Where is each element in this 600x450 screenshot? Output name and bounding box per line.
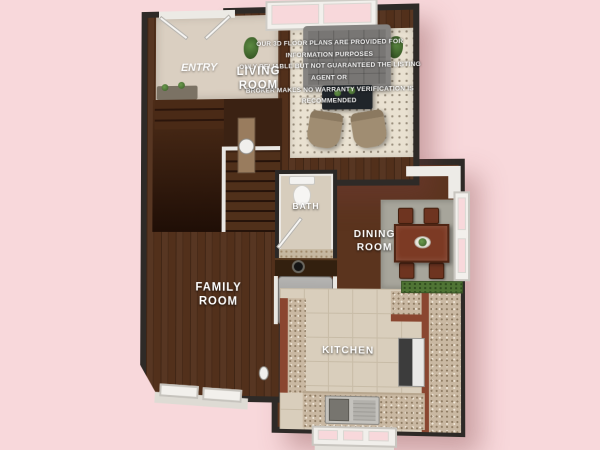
window-pane	[368, 431, 388, 442]
sink-basin	[329, 399, 349, 422]
window-pane	[458, 238, 466, 273]
family-room-window	[159, 383, 199, 399]
window-pane	[318, 430, 338, 441]
living-room-label: LIVING ROOM	[224, 64, 293, 94]
toilet	[289, 176, 315, 185]
kitchen-counter-right-run	[422, 291, 461, 433]
dining-chair	[398, 208, 413, 224]
window-planter	[401, 281, 463, 294]
dining-chair	[424, 208, 439, 224]
floor-vase-icon	[259, 366, 269, 380]
window-pane	[323, 3, 371, 24]
disclaimer-line: OUR 3D FLOOR PLANS ARE PROVIDED FOR INFO…	[239, 36, 422, 63]
plant-icon	[418, 238, 426, 246]
dining-room-label: DINING ROOM	[343, 229, 406, 254]
floor-plan-scene: OUR 3D FLOOR PLANS ARE PROVIDED FOR INFO…	[0, 0, 600, 450]
sink-drainboard	[353, 400, 375, 421]
family-room-window	[202, 387, 242, 403]
kitchen-counter-left-run	[280, 298, 306, 393]
dining-chair	[399, 263, 414, 279]
bath-vanity	[275, 258, 337, 276]
window-pane	[271, 4, 319, 25]
dining-chair	[429, 263, 444, 279]
family-room-label: FAMILY ROOM	[176, 280, 261, 309]
window-pane	[458, 197, 466, 230]
kitchen-label: KITCHEN	[310, 345, 387, 359]
bath-label: BATH	[277, 201, 335, 212]
window-pane	[343, 430, 363, 441]
stair-railing	[222, 149, 226, 232]
round-mirror-icon	[239, 138, 255, 154]
staircase-treads-top	[155, 99, 224, 129]
vanity-sink	[292, 260, 305, 273]
floor-plan: OUR 3D FLOOR PLANS ARE PROVIDED FOR INFO…	[79, 0, 479, 450]
stove	[398, 338, 425, 387]
